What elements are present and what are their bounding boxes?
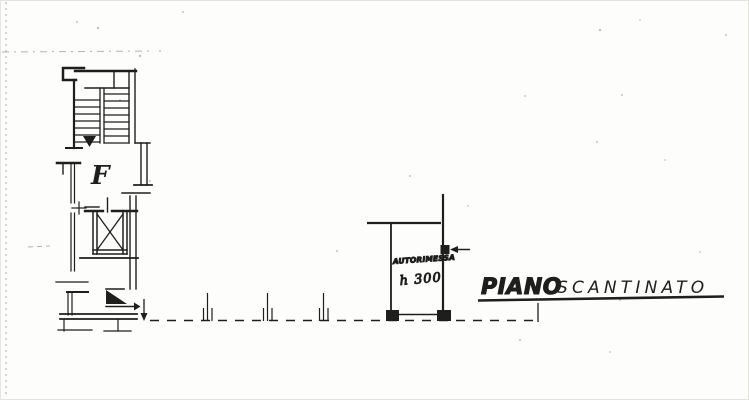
- garage-height-label: h 300: [399, 270, 442, 289]
- survey-tick-group-1: [204, 293, 213, 321]
- garage-room: AUTORIMESSA h 300: [367, 194, 470, 321]
- entrance-door: [58, 289, 141, 331]
- start-arrow-head-icon: [141, 313, 148, 321]
- stair-treads-right-flight: [104, 94, 129, 143]
- pillar-right: [437, 310, 451, 321]
- stairwell-block: [56, 68, 152, 331]
- floor-title-word1: PIANO: [481, 275, 562, 300]
- staircase: [63, 68, 136, 148]
- floorplan-page: F AUTORIMESSA h 300 PIANO SCANTINATO: [0, 0, 749, 400]
- survey-tick-group-3: [320, 293, 329, 321]
- pillar-left: [386, 310, 399, 321]
- fold-dash: [28, 246, 50, 247]
- floor-title-word2: SCANTINATO: [557, 278, 708, 298]
- door-leaf-wedge: [106, 290, 127, 304]
- floor-title: PIANO SCANTINATO: [478, 275, 724, 301]
- scan-artifacts: [2, 2, 727, 398]
- floorplan-drawing: F AUTORIMESSA h 300 PIANO SCANTINATO: [0, 0, 749, 400]
- door-swing-arrow-icon: [134, 303, 141, 311]
- garage-label: AUTORIMESSA: [392, 253, 456, 266]
- top-fold-dashed-line: [2, 51, 152, 52]
- stairwell-left-wall: [56, 163, 88, 315]
- dashed-boundary-line: [141, 293, 539, 322]
- scan-specks: [76, 11, 727, 353]
- stair-block-label: F: [90, 161, 111, 191]
- stair-treads-left-flight: [75, 100, 100, 142]
- survey-tick-group-2: [264, 293, 273, 321]
